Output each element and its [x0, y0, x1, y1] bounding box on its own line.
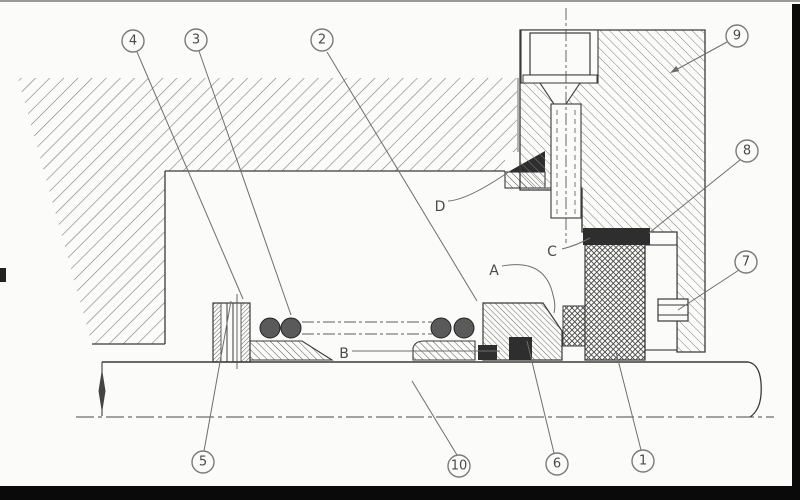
- retainer-ring-part8: [583, 228, 650, 245]
- callout-number: 7: [742, 255, 750, 270]
- callout-number: 4: [129, 34, 137, 49]
- right-black-bar: [792, 4, 800, 500]
- elastomer-b: [478, 345, 497, 360]
- bottom-black-bar: [0, 486, 800, 500]
- callout-number: 5: [199, 455, 207, 470]
- callout-number: 1: [639, 454, 647, 469]
- callout-number: 2: [318, 33, 326, 48]
- callout-number: 6: [553, 457, 561, 472]
- callout-number: 9: [733, 29, 741, 44]
- mechanical-seal-section-drawing: 43298751061DCAB: [0, 0, 800, 500]
- drive-collar: [213, 294, 250, 369]
- left-edge-speck: [0, 268, 6, 282]
- fitting-part7: [658, 299, 688, 321]
- engineering-drawing-page: 43298751061DCAB: [0, 0, 800, 500]
- zone-letter-C: C: [547, 244, 557, 260]
- callout-number: 8: [743, 144, 751, 159]
- zone-letter-B: B: [339, 346, 349, 362]
- callout-number: 3: [192, 33, 200, 48]
- callout-number: 10: [451, 459, 468, 474]
- top-edge-line: [0, 0, 800, 2]
- zone-letter-D: D: [435, 199, 446, 215]
- zone-letter-A: A: [489, 263, 499, 279]
